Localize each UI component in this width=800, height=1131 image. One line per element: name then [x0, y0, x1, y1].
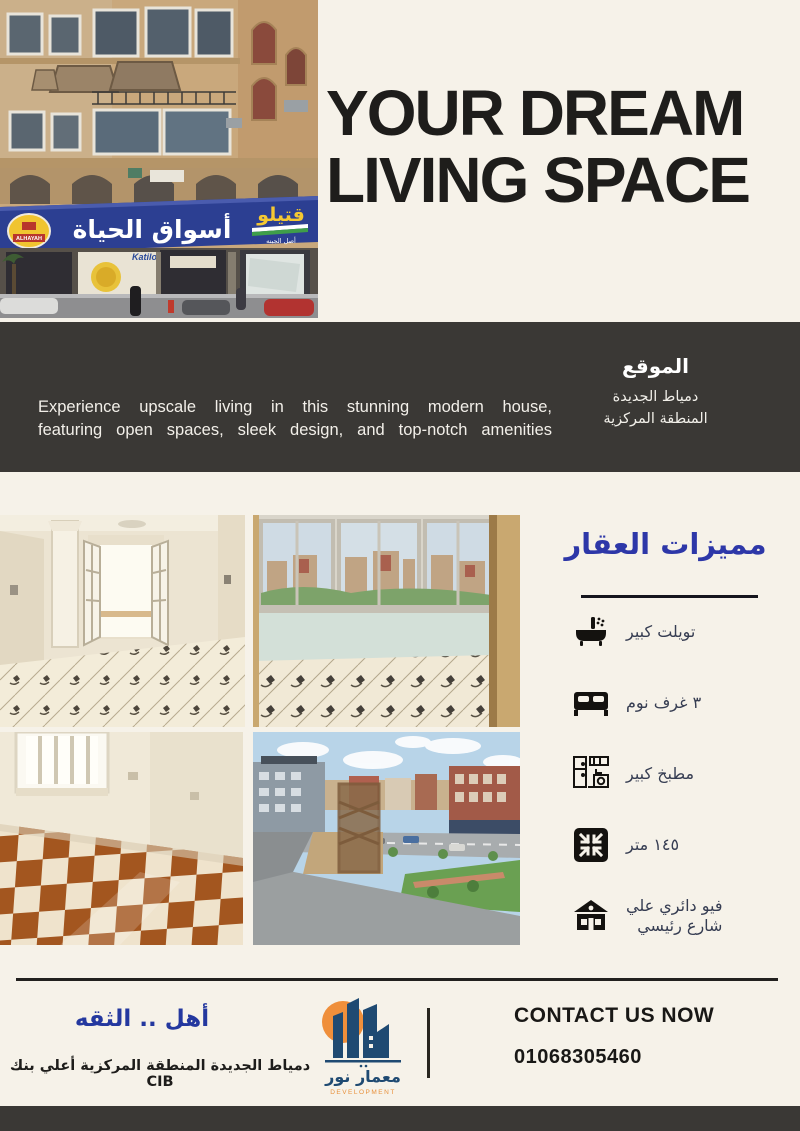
billboard-structure: [339, 784, 379, 872]
flyer-page: ALHAYAH أسواق الحياة قتيلو أصل الجبنه Ka…: [0, 0, 800, 1131]
side-sign-sub-text: أصل الجبنه: [266, 236, 296, 245]
location-line1: دمياط الجديدة: [578, 387, 733, 409]
pedestrian: [130, 286, 141, 316]
features-underline: [581, 595, 758, 598]
location-block: الموقع دمياط الجديدة المنطقة المركزية: [578, 354, 733, 431]
bottom-strip: [0, 1106, 800, 1131]
location-line2: المنطقة المركزية: [578, 409, 733, 431]
banner-text: Katilo: [132, 252, 158, 262]
feature-item-bedrooms: ٣ غرف نوم: [572, 683, 782, 723]
feature-label: ٣ غرف نوم: [626, 693, 701, 713]
footer-vertical-divider: [427, 1008, 430, 1078]
feature-item-view: فيو دائري علي شارع رئيسي: [572, 896, 782, 936]
house-icon: [572, 897, 610, 935]
left-building: [253, 756, 325, 832]
slogan-text: أهل .. الثقه: [42, 1006, 242, 1032]
bathtub-icon: [572, 613, 610, 651]
kitchen-icon: [572, 755, 610, 793]
feature-label: تويلت كبير: [626, 622, 695, 642]
column: [52, 521, 78, 647]
logo-sub-text: DEVELOPMENT: [330, 1089, 396, 1096]
interior-living-room-photo: [0, 515, 245, 727]
red-car: [264, 299, 314, 316]
feature-label-line2: شارع رئيسي: [626, 916, 722, 936]
store-badge: [8, 214, 50, 248]
company-logo: معمار نور DEVELOPMENT: [303, 994, 423, 1098]
interior-checkered-room-photo: [0, 732, 243, 945]
shuttered-window: [16, 732, 108, 796]
description-line2: featuring open spaces, sleek design, and…: [38, 419, 552, 442]
side-sign-text: قتيلو: [256, 204, 305, 226]
aerial-street-view-photo: [253, 732, 520, 945]
main-sign-text: أسواق الحياة: [73, 213, 232, 245]
contact-heading: CONTACT US NOW: [514, 1004, 714, 1028]
window-panes: [261, 521, 491, 605]
logo-name-text: معمار نور: [324, 1067, 401, 1086]
address-text: دمياط الجديدة المنطقة المركزية أعلي بنك …: [6, 1058, 314, 1090]
features-list: تويلت كبير ٣ غرف نوم: [572, 612, 782, 936]
page-title: YOUR DREAM LIVING SPACE: [326, 80, 796, 213]
page-title-line1: YOUR DREAM: [326, 80, 796, 147]
feature-item-area: ١٤٥ متر: [572, 825, 782, 865]
description-text: Experience upscale living in this stunni…: [38, 396, 552, 442]
middle-windows: [10, 110, 230, 154]
description-line1: Experience upscale living in this stunni…: [38, 396, 552, 419]
right-building: [449, 766, 520, 834]
upper-windows: [8, 8, 232, 56]
storefronts: Katilo: [0, 248, 318, 302]
feature-label: فيو دائري علي شارع رئيسي: [626, 896, 722, 936]
feature-label: مطبخ كبير: [626, 764, 694, 784]
page-title-line2: LIVING SPACE: [326, 147, 796, 214]
feature-label: ١٤٥ متر: [626, 835, 679, 855]
feature-item-bathroom: تويلت كبير: [572, 612, 782, 652]
footer-divider-rule: [16, 978, 778, 981]
dark-car: [182, 300, 230, 315]
area-icon: [572, 826, 610, 864]
interior-window-room-photo: [253, 515, 520, 727]
feature-item-kitchen: مطبخ كبير: [572, 754, 782, 794]
feature-label-line1: فيو دائري علي: [626, 896, 722, 916]
hydrant: [168, 300, 174, 313]
contact-block: CONTACT US NOW 01068305460: [514, 1004, 714, 1069]
location-title: الموقع: [578, 354, 733, 378]
store-badge-text: ALHAYAH: [16, 236, 42, 242]
building-exterior-photo: ALHAYAH أسواق الحياة قتيلو أصل الجبنه Ka…: [0, 0, 318, 318]
about-band: Experience upscale living in this stunni…: [0, 322, 800, 472]
white-car: [0, 298, 58, 314]
contact-phone: 01068305460: [514, 1046, 714, 1069]
features-title: مميزات العقار: [563, 527, 768, 561]
bed-icon: [572, 684, 610, 722]
